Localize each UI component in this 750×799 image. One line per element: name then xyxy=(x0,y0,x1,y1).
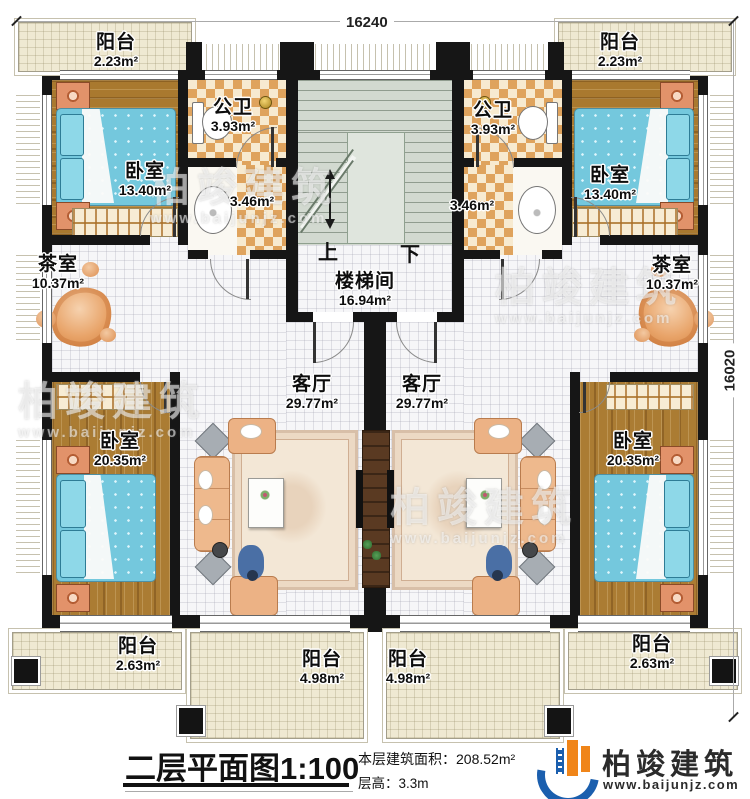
room-label-balcony-bcr: 阳台4.98m² xyxy=(386,650,430,686)
room-area: 29.77m² xyxy=(396,396,448,411)
room-area: 3.93m² xyxy=(211,119,255,134)
room-label-wash-left: 3.46m² xyxy=(230,194,274,209)
wall-bedroom-bottom-top xyxy=(610,372,708,382)
room-name: 茶室 xyxy=(646,256,698,277)
room-name: 卧室 xyxy=(607,432,659,453)
pillow xyxy=(666,158,690,200)
window xyxy=(698,255,708,343)
wardrobe xyxy=(606,384,694,410)
wall-bedroom-top-bottom xyxy=(42,235,150,245)
room-area: 4.98m² xyxy=(386,671,430,686)
balcony-column xyxy=(12,657,40,685)
brand-website: www.baijunjz.com xyxy=(603,777,739,792)
sofa xyxy=(194,456,230,552)
room-area: 13.40m² xyxy=(584,187,636,202)
window-sill xyxy=(315,44,435,70)
wall-bedroom-top-bottom xyxy=(600,235,708,245)
window-sill xyxy=(710,440,734,575)
room-label-balcony-bcl: 阳台4.98m² xyxy=(300,650,344,686)
armchair xyxy=(230,576,278,616)
watermark-site: www.baijunjz.com xyxy=(150,210,338,227)
room-area: 3.93m² xyxy=(471,122,515,137)
pillow xyxy=(664,480,690,528)
room-area: 20.35m² xyxy=(94,453,146,468)
nightstand xyxy=(56,446,90,474)
logo-building-bar xyxy=(581,746,590,772)
watermark: 柏竣建筑 www.baijunjz.com xyxy=(390,488,578,547)
window-sill xyxy=(470,44,550,70)
room-area: 13.40m² xyxy=(119,183,171,198)
room-name: 阳台 xyxy=(598,33,642,54)
armchair-pillow xyxy=(240,424,262,439)
room-label-bath-left: 公卫3.93m² xyxy=(211,98,255,134)
stair-up-label: 上 xyxy=(318,236,338,265)
armchair-pillow xyxy=(488,424,510,439)
room-name: 阳台 xyxy=(94,33,138,54)
nightstand xyxy=(660,446,694,474)
window xyxy=(320,70,430,80)
room-label-balcony-br: 阳台2.63m² xyxy=(630,635,674,671)
floor-plan-page: 柏竣建筑 www.baijunjz.com 柏竣建筑 www.baijunjz.… xyxy=(0,0,750,799)
person-head xyxy=(247,570,258,581)
balcony-column xyxy=(545,706,573,736)
room-name: 茶室 xyxy=(32,255,84,276)
room-area: 10.37m² xyxy=(646,277,698,292)
pillow xyxy=(664,530,690,578)
wall-stairwell xyxy=(452,70,464,322)
room-name: 客厅 xyxy=(396,375,448,396)
wall-wash-bottom xyxy=(188,250,208,259)
window xyxy=(200,615,350,632)
pillow xyxy=(60,114,84,156)
window xyxy=(578,615,690,632)
window-sill xyxy=(200,44,280,70)
dimension-right-value: 16020 xyxy=(721,344,738,398)
room-label-bath-right: 公卫3.93m² xyxy=(471,101,515,137)
room-label-stair-hall: 楼梯间16.94m² xyxy=(335,272,395,308)
room-label-balcony-tl: 阳台2.23m² xyxy=(94,33,138,69)
plant xyxy=(363,540,372,549)
room-area: 2.63m² xyxy=(116,658,160,673)
room-label-tea-left: 茶室10.37m² xyxy=(32,255,84,291)
window xyxy=(60,615,172,632)
plan-title-text: 二层平面图 xyxy=(125,751,280,786)
room-name: 卧室 xyxy=(119,162,171,183)
door-leaf xyxy=(271,127,274,167)
balcony-column xyxy=(177,706,205,736)
room-area: 4.98m² xyxy=(300,671,344,686)
ottoman xyxy=(212,542,228,558)
room-name: 阳台 xyxy=(630,635,674,656)
room-name: 卧室 xyxy=(584,166,636,187)
door-leaf xyxy=(313,322,316,363)
window xyxy=(42,95,52,205)
tv-cabinet xyxy=(362,430,390,588)
window xyxy=(698,95,708,205)
pillow xyxy=(666,114,690,156)
nightstand xyxy=(660,82,694,110)
title-underline-thin xyxy=(125,791,353,792)
title-underline xyxy=(123,783,349,787)
window xyxy=(42,440,52,575)
door-knob xyxy=(259,96,272,109)
room-label-tea-right: 茶室10.37m² xyxy=(646,256,698,292)
coffee-table xyxy=(248,478,284,528)
room-area: 3.46m² xyxy=(230,194,274,209)
plant xyxy=(372,551,381,560)
decor-stone xyxy=(82,262,99,277)
stair-treads-right xyxy=(403,132,452,242)
decor-stone xyxy=(100,328,116,342)
washbasin xyxy=(518,186,556,234)
decor-stone xyxy=(634,328,650,342)
sofa-pillow xyxy=(198,470,213,490)
window xyxy=(572,70,690,80)
watermark-site: www.baijunjz.com xyxy=(495,310,683,327)
balcony-top xyxy=(558,22,732,72)
room-area: 2.23m² xyxy=(598,54,642,69)
nightstand xyxy=(56,82,90,110)
room-label-wash-right: 3.46m² xyxy=(450,198,494,213)
window-sill xyxy=(710,95,734,205)
room-label-bedroom-tr: 卧室13.40m² xyxy=(584,166,636,202)
building-area-text: 本层建筑面积：208.52m² xyxy=(358,749,515,769)
window xyxy=(473,70,545,80)
room-label-balcony-tr: 阳台2.23m² xyxy=(598,33,642,69)
window-sill xyxy=(16,440,40,575)
wall-pier xyxy=(186,42,202,80)
stair-treads-top xyxy=(298,80,452,132)
stair-landing xyxy=(347,132,405,244)
wall-wash-bottom xyxy=(464,250,500,259)
plan-scale: 1:100 xyxy=(280,751,359,786)
room-label-bedroom-bl: 卧室20.35m² xyxy=(94,432,146,468)
room-label-balcony-bl: 阳台2.63m² xyxy=(116,637,160,673)
nightstand xyxy=(660,584,694,612)
room-area: 10.37m² xyxy=(32,276,84,291)
logo-building-bar xyxy=(556,748,564,774)
room-name: 阳台 xyxy=(116,637,160,658)
room-name: 楼梯间 xyxy=(335,272,395,293)
table-flower xyxy=(260,490,270,500)
door-leaf xyxy=(246,259,249,299)
logo-building-bar xyxy=(567,740,578,776)
room-label-living-right: 客厅29.77m² xyxy=(396,375,448,411)
sofa-pillow xyxy=(198,505,213,525)
plan-title: 二层平面图1:100 xyxy=(125,743,359,788)
room-name: 公卫 xyxy=(211,98,255,119)
wall-bath-divider xyxy=(514,158,562,167)
door-leaf xyxy=(574,197,577,237)
window-sill xyxy=(710,255,734,343)
room-area: 3.46m² xyxy=(450,198,494,213)
pillow xyxy=(60,480,86,528)
window xyxy=(698,440,708,575)
room-name: 卧室 xyxy=(94,432,146,453)
stair-down-label: 下 xyxy=(400,238,420,267)
wall-stairhall-bottom xyxy=(286,312,313,322)
nightstand xyxy=(56,584,90,612)
pillow xyxy=(60,158,84,200)
floor-height-text: 层高：3.3m xyxy=(358,772,429,792)
tv-left xyxy=(356,470,363,528)
room-name: 阳台 xyxy=(386,650,430,671)
watermark-site: www.baijunjz.com xyxy=(390,530,578,547)
room-name: 客厅 xyxy=(286,375,338,396)
watermark-name: 柏竣建筑 xyxy=(390,488,578,528)
person-head xyxy=(492,570,503,581)
wall-stairhall-bottom xyxy=(437,312,464,322)
room-name: 阳台 xyxy=(300,650,344,671)
pillow xyxy=(60,530,86,578)
room-area: 2.63m² xyxy=(630,656,674,671)
room-label-bedroom-tl: 卧室13.40m² xyxy=(119,162,171,198)
watermark-name: 柏竣建筑 xyxy=(18,382,206,422)
room-label-bedroom-br: 卧室20.35m² xyxy=(607,432,659,468)
window xyxy=(400,615,550,632)
room-area: 2.23m² xyxy=(94,54,138,69)
wall-wash-bottom xyxy=(250,250,286,259)
brand-logo-icon xyxy=(536,736,598,796)
window-sill xyxy=(16,95,40,205)
room-area: 20.35m² xyxy=(607,453,659,468)
window xyxy=(60,70,178,80)
armchair xyxy=(472,576,520,616)
door-leaf xyxy=(583,382,586,413)
door-leaf xyxy=(434,322,437,363)
room-area: 16.94m² xyxy=(335,293,395,308)
room-name: 公卫 xyxy=(471,101,515,122)
window xyxy=(205,70,277,80)
dimension-top-value: 16240 xyxy=(340,14,394,31)
room-label-living-left: 客厅29.77m² xyxy=(286,375,338,411)
room-area: 29.77m² xyxy=(286,396,338,411)
wall-wash-bottom xyxy=(542,250,562,259)
